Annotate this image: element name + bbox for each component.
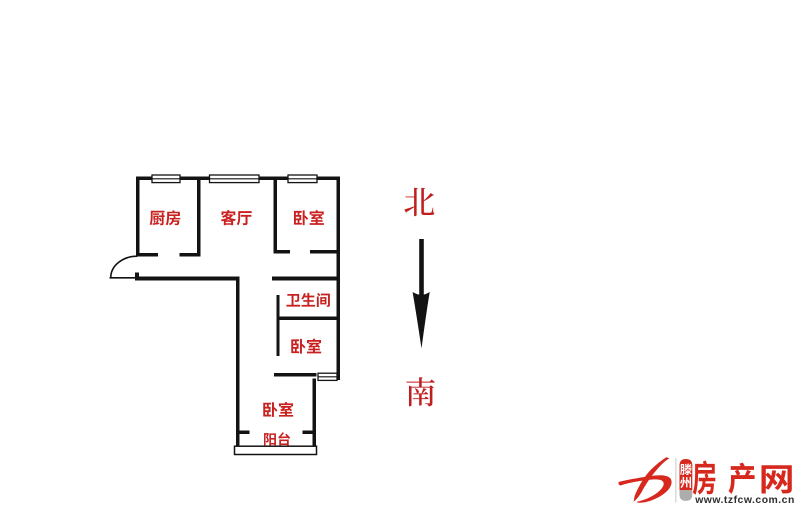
svg-text:www.tzfcw.com.cn: www.tzfcw.com.cn — [694, 495, 795, 506]
